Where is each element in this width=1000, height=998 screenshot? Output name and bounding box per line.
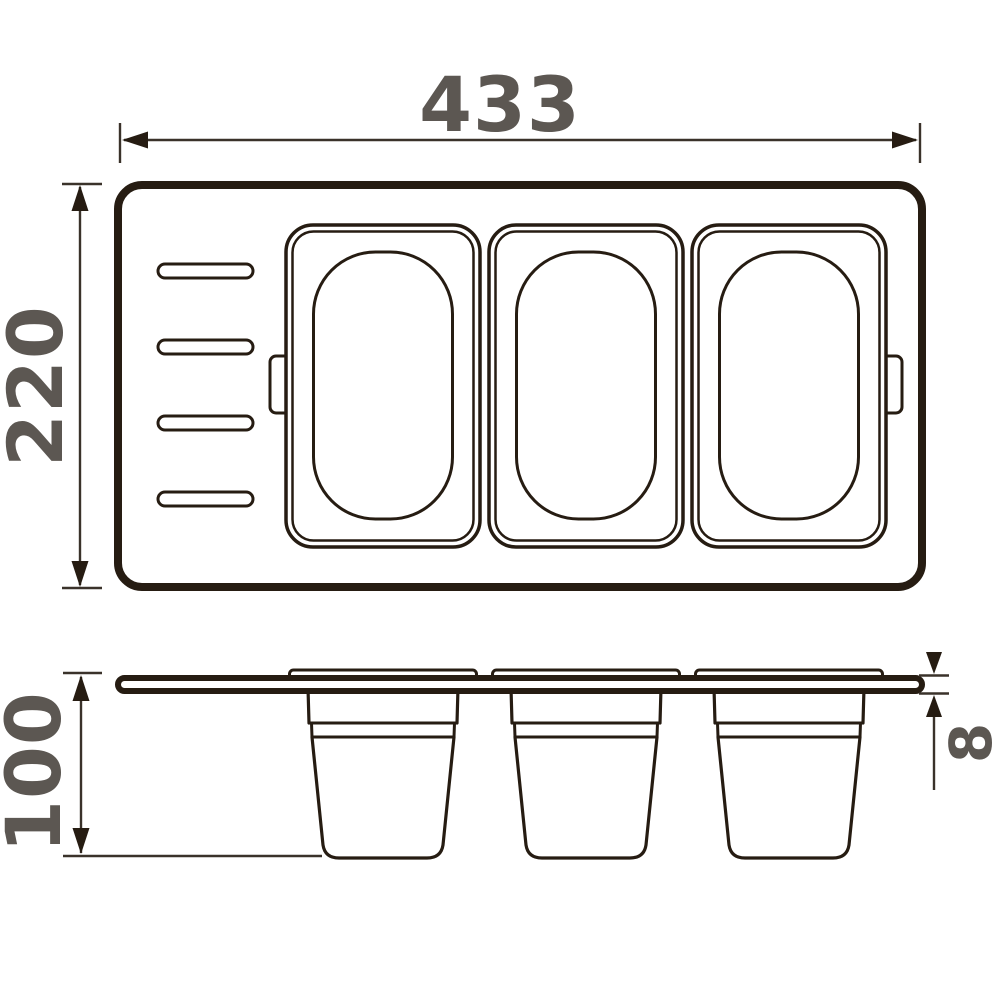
dimension-thickness: 8: [919, 652, 1000, 790]
depth-arrow-bottom: [72, 561, 89, 587]
container-1-top-view: [286, 225, 480, 547]
container-3-side-view: [714, 688, 864, 858]
drain-slot-3: [158, 416, 253, 430]
container-1-body: [312, 737, 454, 858]
container-3-top-view: [692, 225, 886, 547]
width-arrow-right: [892, 132, 918, 149]
depth-arrow-top: [72, 185, 89, 211]
dimension-height: 100: [0, 673, 322, 856]
container-3-body: [718, 737, 860, 858]
container-2-side-view: [511, 688, 661, 858]
container-2-outer-rim: [489, 225, 683, 547]
drain-slot-4: [158, 492, 253, 506]
tray-profile-bar: [118, 678, 922, 691]
drawing-canvas: 433 220: [0, 0, 1000, 998]
dimension-width: 433: [120, 60, 920, 163]
depth-dimension-label: 220: [0, 305, 80, 467]
width-arrow-left: [122, 132, 148, 149]
container-2-top-view: [489, 225, 683, 547]
thickness-arrow-top: [926, 652, 942, 674]
drain-slot-2: [158, 340, 253, 354]
top-view: [118, 185, 922, 587]
side-view: [118, 670, 922, 858]
container-1-outer-rim: [286, 225, 480, 547]
thickness-arrow-bottom: [926, 695, 942, 717]
dimension-depth: 220: [0, 184, 102, 588]
drain-slot-1: [158, 264, 253, 278]
technical-drawing: 433 220: [0, 0, 1000, 998]
container-3-outer-rim: [692, 225, 886, 547]
container-2-body: [515, 737, 657, 858]
container-1-side-view: [308, 688, 458, 858]
width-dimension-label: 433: [419, 60, 581, 149]
container-3-lip-line-2: [718, 723, 861, 737]
container-2-lip-line-2: [515, 723, 658, 737]
container-1-lip-line-2: [312, 723, 455, 737]
thickness-dimension-label: 8: [937, 723, 1000, 763]
height-dimension-label: 100: [0, 691, 78, 853]
